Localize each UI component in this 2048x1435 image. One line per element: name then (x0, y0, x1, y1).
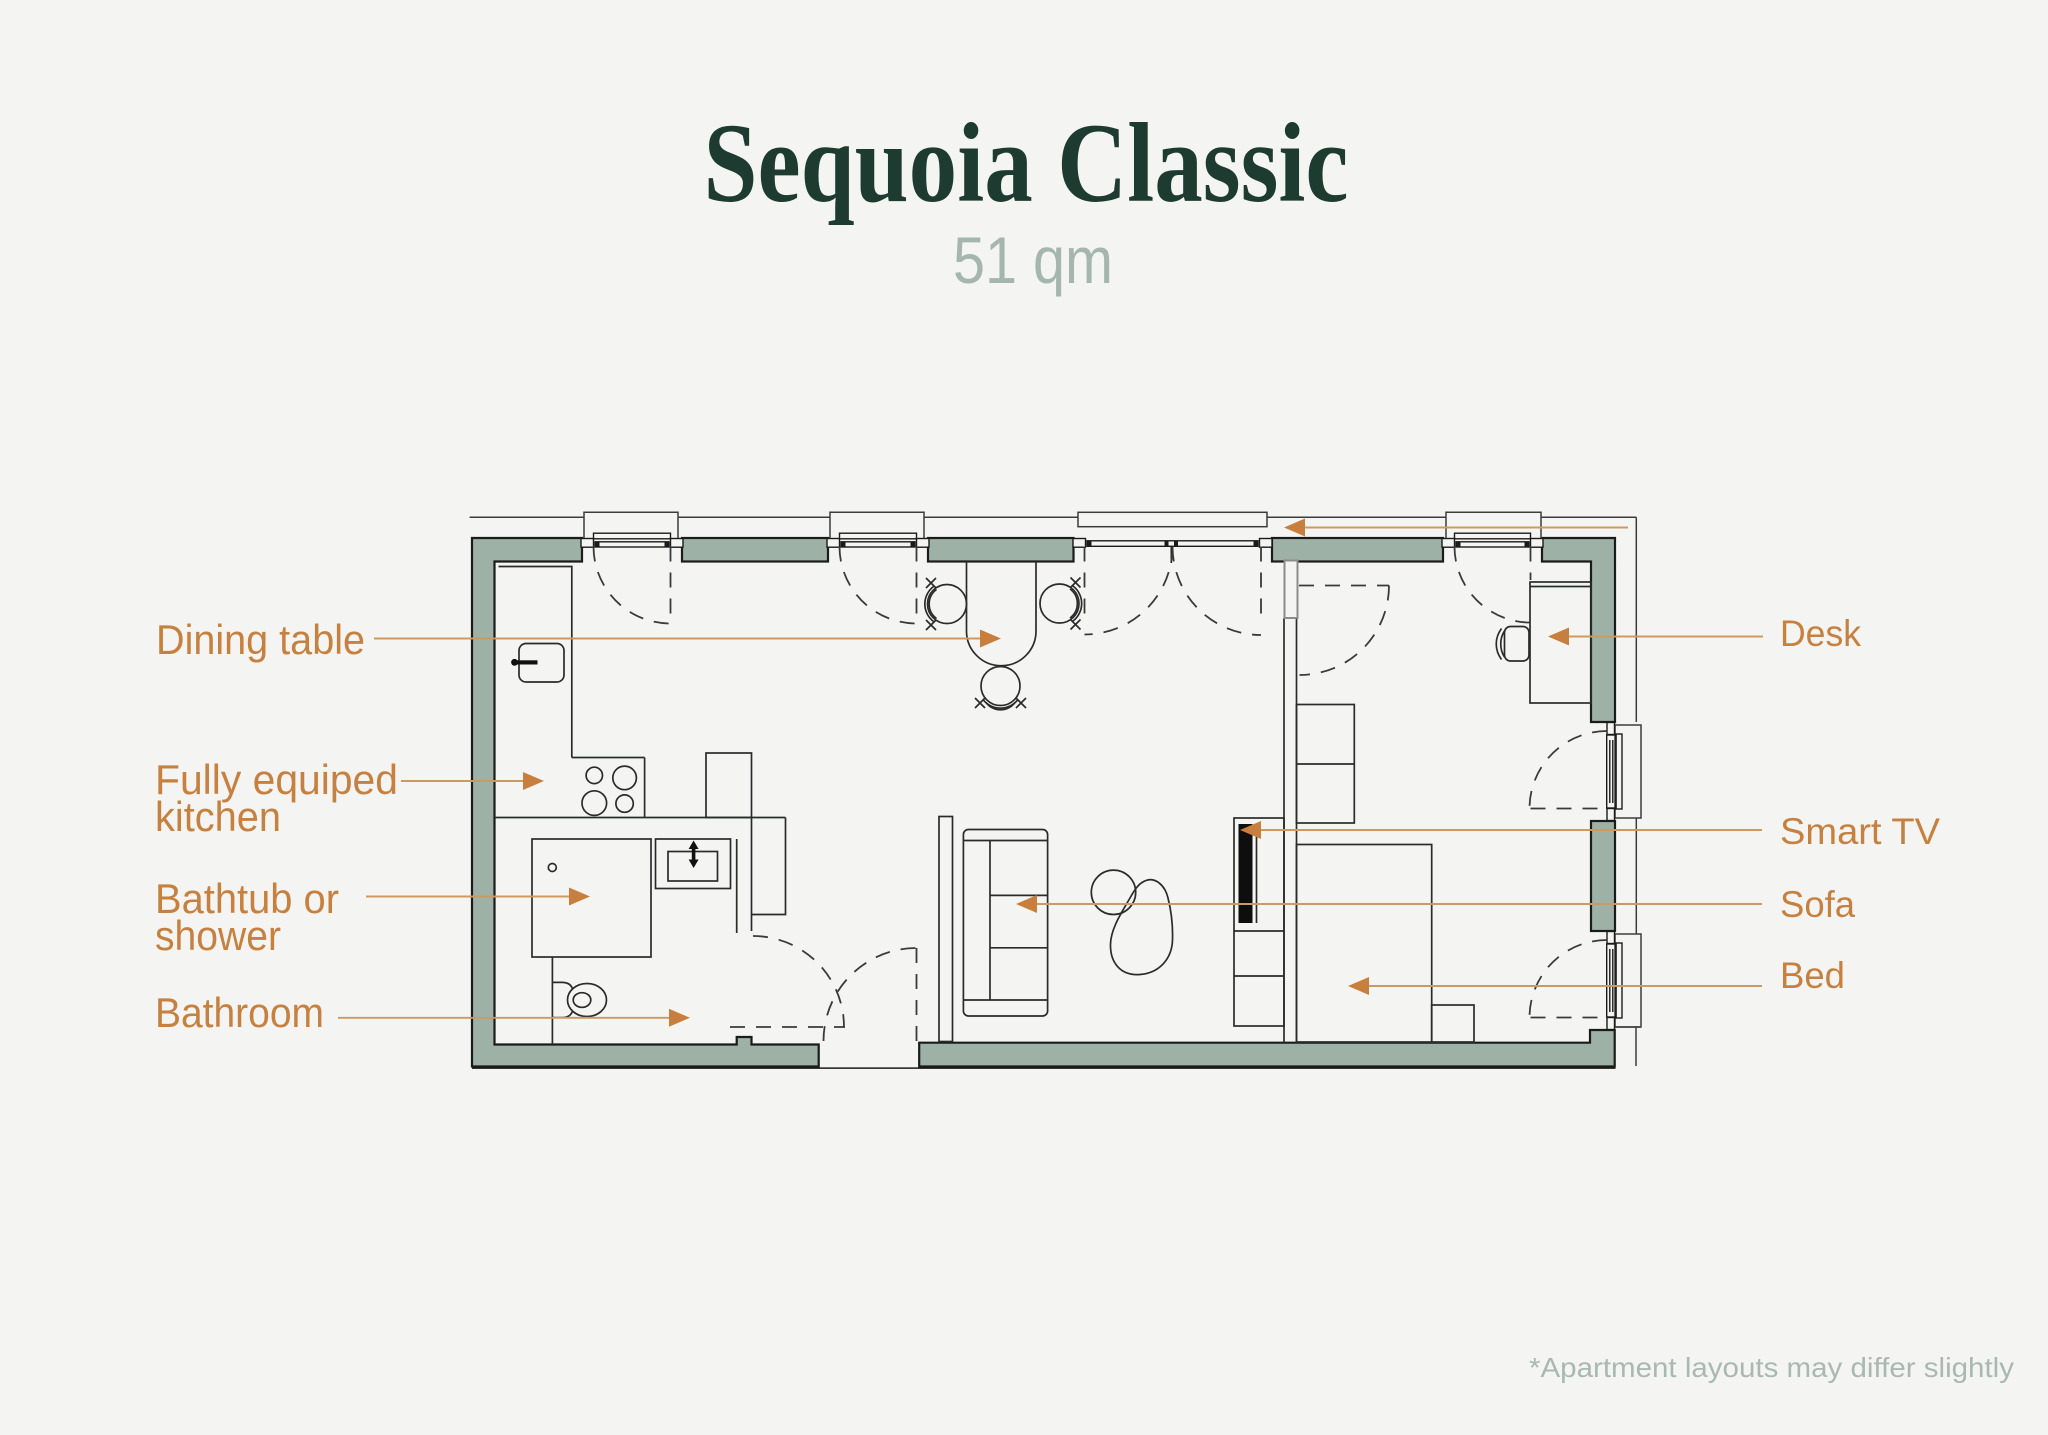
svg-text:Dining table: Dining table (156, 616, 365, 663)
svg-text:51 qm: 51 qm (953, 223, 1113, 297)
svg-text:kitchen: kitchen (155, 793, 281, 840)
svg-text:Bathroom: Bathroom (155, 989, 324, 1036)
svg-text:*Apartment layouts may differ: *Apartment layouts may differ slightly (1529, 1352, 2014, 1383)
svg-text:Sofa: Sofa (1780, 884, 1855, 925)
svg-text:Bed: Bed (1780, 955, 1845, 996)
svg-text:Smart TV: Smart TV (1780, 811, 1940, 852)
svg-text:Sequoia Classic: Sequoia Classic (704, 101, 1349, 226)
svg-text:shower: shower (155, 912, 281, 959)
svg-text:Desk: Desk (1780, 613, 1861, 654)
